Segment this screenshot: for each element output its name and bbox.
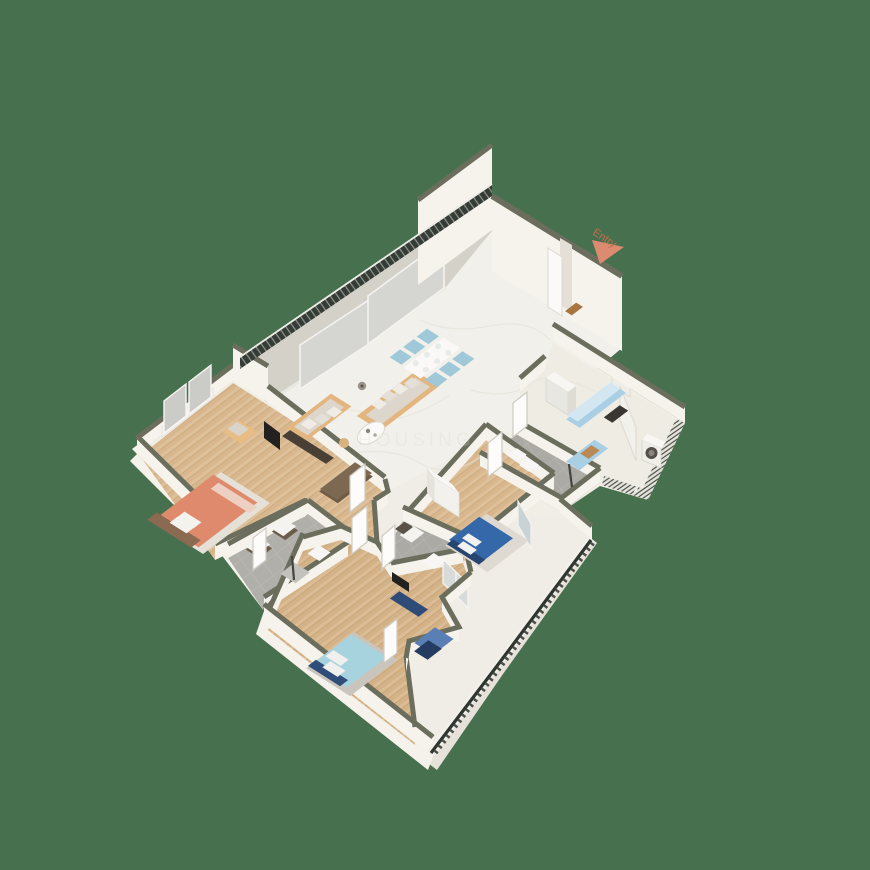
svg-text:HOUSING: HOUSING <box>358 430 475 451</box>
